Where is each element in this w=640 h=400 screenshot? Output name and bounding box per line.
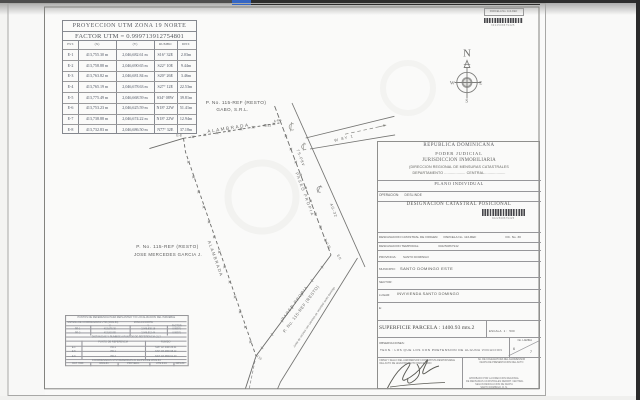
svg-text:AG-32: AG-32 — [329, 203, 338, 218]
svg-text:0.15: 0.15 — [265, 123, 271, 127]
svg-text:E-5: E-5 — [336, 254, 342, 261]
svg-text:ALAMBRADA: ALAMBRADA — [207, 122, 250, 134]
svg-text:ALAMBRADA: ALAMBRADA — [207, 240, 224, 278]
svg-text:S: S — [465, 100, 468, 105]
svg-text:E-8: E-8 — [176, 134, 181, 138]
svg-text:W 8Y 1: W 8Y 1 — [334, 133, 355, 143]
svg-text:E: E — [479, 82, 482, 87]
svg-text:N: N — [463, 48, 471, 60]
svg-text:0.15: 0.15 — [325, 242, 332, 250]
svg-text:0.15: 0.15 — [255, 354, 262, 361]
svg-text:W: W — [450, 82, 455, 87]
